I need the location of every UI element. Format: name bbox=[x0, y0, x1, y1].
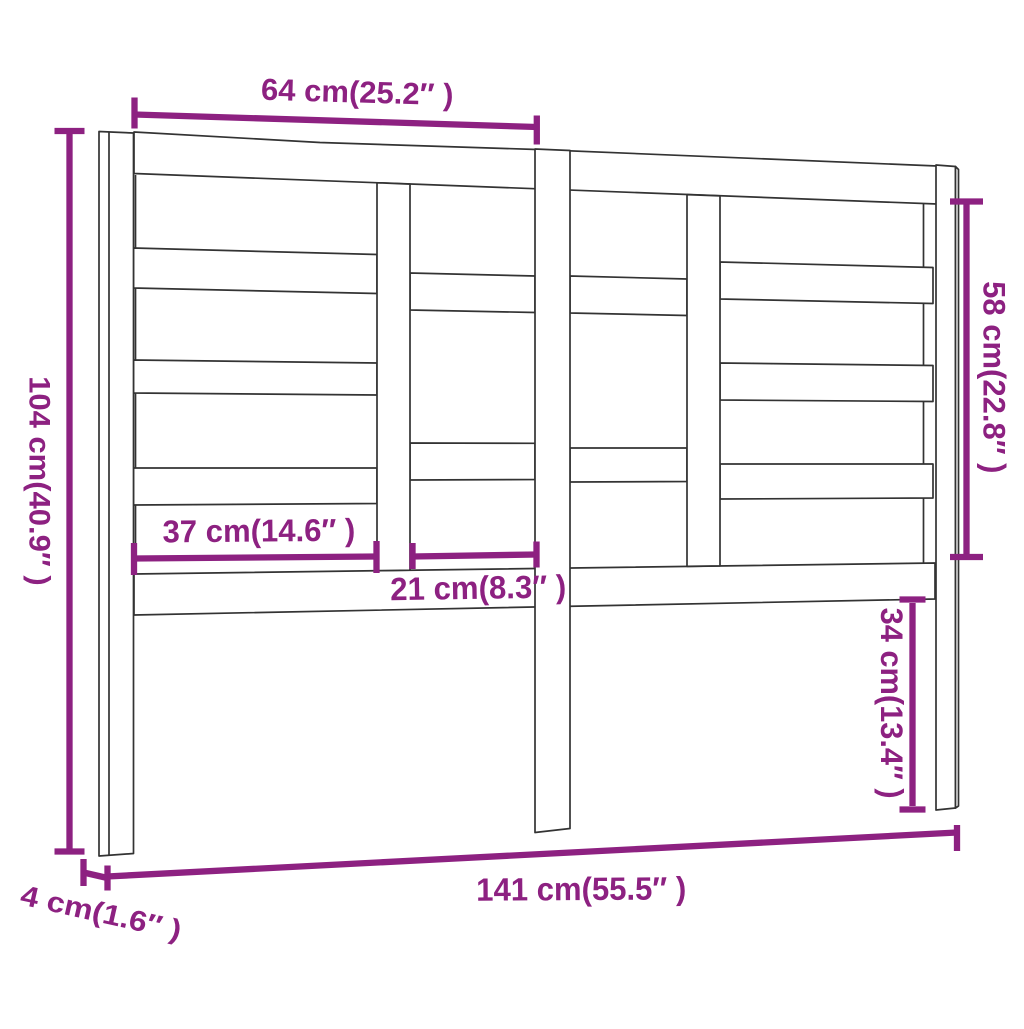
svg-text:141 cm(55.5″ ): 141 cm(55.5″ ) bbox=[476, 870, 686, 907]
svg-text:104 cm(40.9″ ): 104 cm(40.9″ ) bbox=[23, 376, 56, 586]
svg-text:21 cm(8.3″ ): 21 cm(8.3″ ) bbox=[390, 568, 567, 607]
svg-text:34 cm(13.4″ ): 34 cm(13.4″ ) bbox=[874, 608, 910, 799]
svg-text:58 cm(22.8″ ): 58 cm(22.8″ ) bbox=[977, 281, 1012, 473]
svg-text:37 cm(14.6″ ): 37 cm(14.6″ ) bbox=[162, 512, 355, 550]
svg-text:4 cm(1.6″ ): 4 cm(1.6″ ) bbox=[17, 880, 184, 947]
svg-text:64 cm(25.2″ ): 64 cm(25.2″ ) bbox=[261, 73, 454, 112]
